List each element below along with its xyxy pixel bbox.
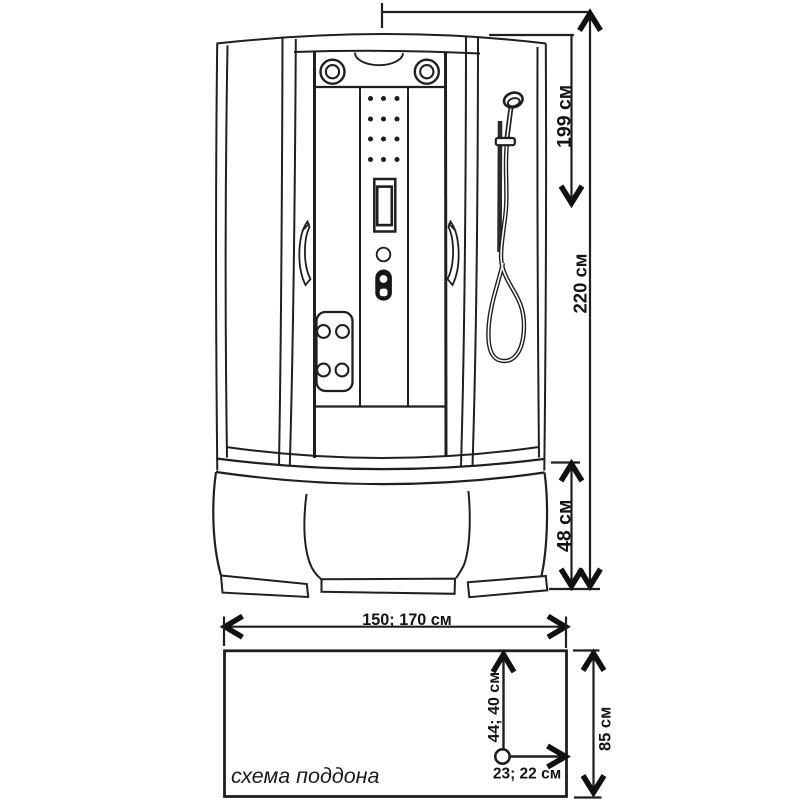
svg-text:199 см: 199 см	[554, 85, 576, 148]
svg-text:44; 40 см: 44; 40 см	[486, 672, 503, 743]
svg-text:85 см: 85 см	[597, 707, 615, 751]
svg-text:48 см: 48 см	[554, 500, 576, 552]
svg-text:23; 22 см: 23; 22 см	[493, 766, 561, 783]
svg-text:схема поддона: схема поддона	[231, 764, 380, 788]
svg-text:150; 170 см: 150; 170 см	[362, 611, 451, 629]
svg-text:220 см: 220 см	[570, 254, 591, 314]
